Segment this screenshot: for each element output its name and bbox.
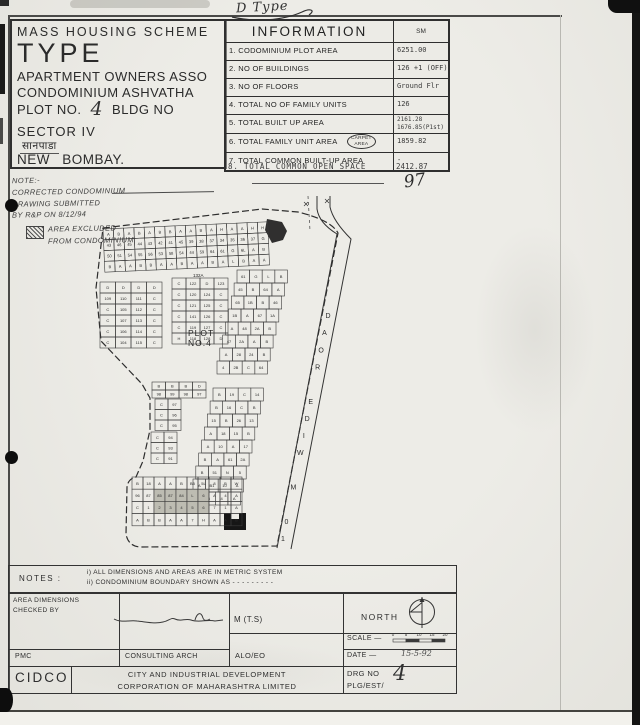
svg-text:7: 7: [213, 505, 216, 510]
svg-text:61: 61: [241, 274, 246, 279]
svg-text:C: C: [160, 402, 163, 407]
paper-margin: [0, 712, 640, 725]
north-arrow-icon: [403, 594, 441, 630]
svg-text:B5: B5: [190, 481, 196, 486]
svg-text:C: C: [178, 325, 181, 330]
plan-cluster-left-strip: C97C96C95: [155, 399, 181, 431]
svg-text:123: 123: [218, 281, 225, 286]
svg-text:A: A: [216, 457, 219, 462]
svg-text:2B: 2B: [233, 365, 238, 370]
road-label-char: 1: [281, 536, 285, 543]
signature: [111, 599, 241, 627]
svg-text:16: 16: [227, 405, 232, 410]
plan-cluster-road-strip-upper: 61GLB45B64A651BB461BA671AA482AB472AABA28…: [217, 270, 287, 374]
carpet-area-bubble: CARPETAREA: [347, 134, 376, 149]
svg-text:104: 104: [120, 340, 127, 345]
svg-text:B: B: [158, 230, 161, 235]
svg-text:10: 10: [218, 444, 223, 449]
notes-line-1: i) ALL DIMENSIONS AND AREAS ARE IN METRI…: [87, 569, 283, 576]
plot-no-handwritten: 4: [90, 98, 103, 120]
info-row-label: 2. NO OF BUILDINGS: [226, 61, 393, 78]
svg-text:10: 10: [416, 632, 422, 637]
svg-text:A: A: [128, 231, 131, 236]
bldg-no-label: BLDG NO: [112, 102, 174, 117]
date-label: DATE —: [347, 652, 377, 659]
svg-text:94: 94: [168, 435, 173, 440]
svg-text:B: B: [268, 326, 271, 331]
svg-text:113: 113: [136, 318, 143, 323]
svg-text:C: C: [220, 325, 223, 330]
svg-text:59: 59: [200, 249, 205, 254]
svg-text:A: A: [169, 481, 172, 486]
svg-text:C: C: [178, 292, 181, 297]
svg-text:C: C: [106, 329, 109, 334]
svg-text:C: C: [243, 392, 246, 397]
svg-text:D: D: [153, 285, 156, 290]
svg-text:61: 61: [228, 457, 233, 462]
svg-text:A: A: [180, 517, 183, 522]
svg-text:65: 65: [235, 300, 240, 305]
svg-text:5: 5: [239, 470, 242, 475]
svg-text:B: B: [136, 481, 139, 486]
info-row-value: 126 +1 (OFF): [393, 61, 448, 78]
svg-text:97: 97: [197, 392, 202, 397]
scheme-condominium: CONDOMINIUM ASHVATHA: [17, 85, 194, 100]
road-label-char: R: [315, 365, 320, 372]
scan-blob: [0, 688, 13, 712]
svg-text:B: B: [171, 384, 174, 389]
svg-text:5L: 5L: [201, 481, 206, 486]
svg-text:B: B: [201, 470, 204, 475]
scheme-title: MASS HOUSING SCHEME: [17, 25, 209, 39]
svg-text:H: H: [261, 225, 264, 230]
svg-text:C: C: [247, 365, 250, 370]
svg-text:15: 15: [429, 632, 435, 637]
info-rows: 1. CODOMINIUM PLOT AREA6251.002. NO OF B…: [226, 43, 448, 170]
info-row-label: 1. CODOMINIUM PLOT AREA: [226, 43, 393, 60]
svg-text:A: A: [201, 260, 204, 265]
info-row-value: 2161.281676.85(P1st): [393, 115, 448, 133]
svg-text:B: B: [204, 457, 207, 462]
svg-text:C: C: [220, 292, 223, 297]
svg-text:53: 53: [158, 251, 163, 256]
svg-text:14: 14: [255, 392, 260, 397]
plan-cluster-bottom-block: B18AABB55L8BW9687858784L6A4AC12345671AAB…: [132, 477, 242, 526]
svg-text:C: C: [178, 281, 181, 286]
svg-text:B: B: [242, 258, 245, 263]
svg-text:B: B: [108, 264, 111, 269]
scale-label: SCALE —: [347, 635, 382, 642]
svg-text:34: 34: [220, 238, 225, 243]
svg-text:2A: 2A: [239, 339, 244, 344]
svg-text:G: G: [231, 248, 234, 253]
survey-mark: [304, 202, 308, 206]
svg-text:C: C: [153, 307, 156, 312]
mts-initials: M (T.S): [234, 615, 263, 624]
svg-text:C: C: [136, 505, 139, 510]
svg-text:D: D: [198, 384, 201, 389]
svg-text:107: 107: [120, 318, 127, 323]
information-header: INFORMATION SM: [226, 21, 448, 43]
open-space-label: 8. TOTAL COMMON OPEN SPACE: [228, 162, 366, 171]
svg-text:45: 45: [179, 239, 184, 244]
svg-text:B: B: [253, 405, 256, 410]
svg-text:A: A: [263, 257, 266, 262]
plot-no-label: PLOT NO.: [17, 102, 81, 117]
svg-text:67: 67: [258, 313, 263, 318]
svg-text:C: C: [160, 423, 163, 428]
organization-name: CITY AND INDUSTRIAL DEVELOPMENTCORPORATI…: [75, 669, 339, 692]
svg-text:A: A: [191, 261, 194, 266]
road-label-char: O: [318, 347, 324, 354]
svg-text:L: L: [267, 274, 270, 279]
handwritten-drg-number: 4: [393, 661, 406, 685]
svg-text:44: 44: [137, 241, 142, 246]
svg-text:2A: 2A: [255, 326, 260, 331]
svg-text:1: 1: [224, 505, 227, 510]
scheme-sector: SECTOR IV: [17, 124, 96, 139]
svg-text:W: W: [235, 481, 239, 486]
svg-text:H: H: [251, 226, 254, 231]
svg-text:A: A: [213, 517, 216, 522]
road-label-char: D: [305, 416, 310, 423]
svg-text:C: C: [240, 405, 243, 410]
plan-cluster-top-band: ABABABBAABAHAAHH434645444342414539383734…: [103, 222, 270, 272]
svg-text:B: B: [247, 431, 250, 436]
svg-text:C: C: [160, 412, 163, 417]
scheme-type: TYPE: [17, 38, 104, 69]
punch-hole: [5, 451, 18, 464]
scheme-city: NEW BOMBAY.: [17, 152, 125, 167]
svg-text:18: 18: [221, 431, 226, 436]
svg-text:1: 1: [147, 505, 150, 510]
information-title: INFORMATION: [226, 21, 393, 42]
info-row-value: Ground Flr: [393, 79, 448, 96]
svg-text:84: 84: [179, 493, 184, 498]
svg-text:C: C: [156, 445, 159, 450]
svg-text:51: 51: [117, 253, 122, 258]
svg-text:A: A: [231, 326, 234, 331]
svg-text:A: A: [119, 264, 122, 269]
svg-text:18: 18: [146, 481, 151, 486]
svg-text:61: 61: [220, 248, 225, 253]
scheme-owner: APARTMENT OWNERS ASSO: [17, 69, 207, 84]
svg-text:4: 4: [222, 365, 225, 370]
svg-text:C: C: [106, 307, 109, 312]
svg-text:H: H: [178, 336, 181, 341]
svg-text:L: L: [232, 259, 235, 264]
svg-text:C: C: [153, 296, 156, 301]
svg-text:C: C: [153, 318, 156, 323]
svg-text:126: 126: [204, 314, 211, 319]
svg-text:56: 56: [148, 252, 153, 257]
svg-text:A: A: [232, 444, 235, 449]
svg-text:35: 35: [230, 237, 235, 242]
svg-text:B: B: [117, 231, 120, 236]
svg-text:54: 54: [128, 252, 133, 257]
info-row-label: 4. TOTAL NO OF FAMILY UNITS: [226, 97, 393, 114]
notes-label: NOTES :: [19, 574, 62, 583]
svg-text:91: 91: [168, 456, 173, 461]
svg-text:D: D: [106, 285, 109, 290]
handwritten-type-note: D Type: [236, 0, 289, 16]
svg-text:28: 28: [236, 352, 241, 357]
svg-text:2A: 2A: [240, 457, 245, 462]
svg-text:120: 120: [190, 292, 197, 297]
plan-cluster-left-strip-2: C94C93C91: [151, 432, 177, 464]
svg-text:A: A: [224, 517, 227, 522]
svg-text:17: 17: [243, 444, 248, 449]
plan-cluster-mid-row: BBBD98999897: [152, 382, 206, 398]
svg-text:B: B: [215, 405, 218, 410]
svg-text:B: B: [235, 517, 238, 522]
svg-text:64: 64: [263, 287, 268, 292]
svg-text:26: 26: [237, 418, 242, 423]
svg-text:0: 0: [392, 632, 395, 637]
svg-text:C: C: [156, 456, 159, 461]
notes-box: NOTES : i) ALL DIMENSIONS AND AREAS ARE …: [8, 565, 457, 594]
road-line-right: [291, 196, 351, 549]
svg-text:51: 51: [212, 470, 217, 475]
svg-text:B: B: [147, 517, 150, 522]
scan-edge-right: [632, 0, 640, 725]
plot-no-4-label: NO.4: [188, 338, 212, 348]
svg-text:G: G: [261, 236, 264, 241]
info-row-value: 6251.00: [393, 43, 448, 60]
svg-text:43: 43: [107, 243, 112, 248]
svg-text:H: H: [220, 227, 223, 232]
underline-stroke: [252, 183, 384, 184]
svg-text:37: 37: [209, 238, 214, 243]
scheme-title-box: MASS HOUSING SCHEME TYPE APARTMENT OWNER…: [10, 19, 227, 169]
svg-text:A: A: [179, 229, 182, 234]
svg-text:B: B: [261, 300, 264, 305]
svg-text:5: 5: [405, 632, 408, 637]
svg-text:C: C: [153, 329, 156, 334]
svg-text:B: B: [138, 230, 141, 235]
svg-text:87: 87: [168, 493, 173, 498]
svg-text:105: 105: [120, 307, 127, 312]
svg-text:A: A: [277, 287, 280, 292]
svg-text:121: 121: [190, 303, 197, 308]
svg-text:A: A: [136, 517, 139, 522]
scan-smudge: [70, 0, 210, 8]
svg-text:B: B: [169, 229, 172, 234]
svg-text:C: C: [106, 340, 109, 345]
info-row: 4. TOTAL NO OF FAMILY UNITS126: [226, 97, 448, 115]
svg-text:99: 99: [170, 392, 175, 397]
info-row: 5. TOTAL BUILT UP AREA2161.281676.85(P1s…: [226, 115, 448, 134]
scan-edge-corner: [608, 0, 640, 13]
road-label-char: A: [322, 330, 327, 337]
note-heading: NOTE:-: [12, 176, 40, 185]
svg-text:47: 47: [227, 339, 232, 344]
svg-text:B: B: [211, 260, 214, 265]
svg-text:141: 141: [190, 314, 197, 319]
svg-text:N: N: [226, 470, 229, 475]
scanned-drawing-sheet: D Type MASS HOUSING SCHEME TYPE APARTMEN…: [0, 0, 640, 725]
svg-text:1B: 1B: [232, 313, 237, 318]
svg-text:45: 45: [238, 287, 243, 292]
svg-text:87: 87: [146, 493, 151, 498]
handwritten-sheet-number: 97: [403, 170, 427, 193]
info-row-label: 5. TOTAL BUILT UP AREA: [226, 115, 393, 133]
svg-text:B: B: [218, 392, 221, 397]
svg-text:A: A: [158, 481, 161, 486]
svg-text:1B: 1B: [248, 300, 253, 305]
svg-text:B: B: [200, 228, 203, 233]
information-table: INFORMATION SM 1. CODOMINIUM PLOT AREA62…: [224, 19, 450, 172]
svg-text:B: B: [139, 263, 142, 268]
info-row-label: 3. NO OF FLOORS: [226, 79, 393, 96]
svg-text:114: 114: [136, 329, 143, 334]
plot-no-4-label: PLOT: [188, 328, 214, 338]
svg-text:A: A: [253, 339, 256, 344]
svg-text:C: C: [220, 303, 223, 308]
svg-text:37: 37: [251, 236, 256, 241]
svg-text:110: 110: [120, 296, 127, 301]
svg-text:111: 111: [136, 296, 143, 301]
survey-mark: [325, 199, 329, 203]
svg-text:B: B: [184, 384, 187, 389]
road-line-left: [277, 196, 337, 548]
plan-cluster-block-d: DDDD109110111CC105112CC107113CC106114CC1…: [100, 282, 162, 348]
svg-text:B: B: [265, 339, 268, 344]
svg-text:20: 20: [442, 632, 448, 637]
svg-text:24: 24: [249, 352, 254, 357]
svg-text:A: A: [225, 352, 228, 357]
svg-text:B: B: [263, 352, 266, 357]
svg-text:C: C: [153, 340, 156, 345]
svg-text:8: 8: [213, 481, 216, 486]
consulting-arch-label: CONSULTING ARCH: [125, 653, 198, 660]
svg-text:B: B: [158, 517, 161, 522]
svg-text:44: 44: [189, 250, 194, 255]
info-row-value: 126: [393, 97, 448, 114]
svg-text:C: C: [220, 314, 223, 319]
svg-text:122: 122: [190, 281, 197, 286]
svg-text:B: B: [224, 481, 227, 486]
sheet-border-right: [560, 15, 561, 711]
road-label-char: 0: [285, 519, 289, 526]
svg-text:55: 55: [138, 252, 143, 257]
road-label-char: M: [290, 485, 296, 492]
excluded-area-hatch-swatch: [26, 226, 44, 239]
grid-line: [343, 593, 344, 693]
drg-no-label: DRG NOPLG/EST/: [347, 668, 384, 691]
svg-text:112: 112: [136, 307, 143, 312]
svg-text:125: 125: [204, 303, 211, 308]
grid-line: [9, 666, 456, 667]
svg-text:96: 96: [135, 493, 140, 498]
svg-text:50: 50: [107, 253, 112, 258]
svg-text:124: 124: [204, 292, 211, 297]
svg-text:A: A: [129, 263, 132, 268]
officer-label: ALO/EO: [235, 651, 265, 660]
svg-text:B: B: [225, 418, 228, 423]
title-block: AREA DIMENSIONSCHECKED BY M (T.S) NORTH …: [8, 592, 457, 694]
svg-text:4: 4: [220, 496, 223, 501]
svg-text:58: 58: [169, 251, 174, 256]
block-132a-label: 132A: [193, 273, 204, 278]
info-row: 1. CODOMINIUM PLOT AREA6251.00: [226, 43, 448, 61]
svg-text:A: A: [160, 262, 163, 267]
info-row: 2. NO OF BUILDINGS126 +1 (OFF): [226, 61, 448, 79]
svg-text:A: A: [189, 228, 192, 233]
svg-text:C: C: [178, 314, 181, 319]
svg-text:D: D: [206, 281, 209, 286]
svg-text:B: B: [252, 287, 255, 292]
checked-by-label: AREA DIMENSIONSCHECKED BY: [13, 596, 79, 617]
road-label-char: D: [325, 313, 330, 320]
north-label: NORTH: [361, 612, 399, 622]
svg-text:A: A: [210, 227, 213, 232]
svg-text:A: A: [209, 431, 212, 436]
svg-text:106: 106: [120, 329, 127, 334]
svg-text:D: D: [220, 336, 223, 341]
svg-text:64: 64: [259, 365, 264, 370]
svg-text:64: 64: [210, 249, 215, 254]
svg-text:115: 115: [136, 340, 143, 345]
svg-text:85: 85: [157, 493, 162, 498]
info-row: 3. NO OF FLOORSGround Flr: [226, 79, 448, 97]
info-row-value: 1859.82: [393, 134, 448, 152]
svg-text:15: 15: [211, 418, 216, 423]
svg-text:43: 43: [148, 241, 153, 246]
handwritten-date: 15-5-92: [401, 649, 432, 658]
grid-line: [71, 666, 72, 693]
svg-text:36: 36: [240, 237, 245, 242]
svg-text:41: 41: [168, 240, 173, 245]
svg-text:B: B: [280, 274, 283, 279]
svg-text:A: A: [213, 493, 216, 498]
svg-text:B: B: [262, 247, 265, 252]
svg-text:A: A: [241, 226, 244, 231]
svg-text:H: H: [202, 517, 205, 522]
svg-text:A: A: [230, 226, 233, 231]
svg-text:42: 42: [158, 240, 163, 245]
road-label-char: W: [297, 450, 304, 457]
svg-text:C: C: [156, 435, 159, 440]
svg-text:96: 96: [172, 412, 177, 417]
svg-text:93: 93: [168, 445, 173, 450]
punch-hole: [5, 199, 18, 212]
svg-text:39: 39: [189, 239, 194, 244]
road-label-char: E: [308, 399, 313, 406]
svg-text:A: A: [252, 258, 255, 263]
svg-text:54: 54: [179, 250, 184, 255]
scan-edge-left: [0, 118, 3, 144]
grid-line: [9, 649, 229, 650]
cidco-logo-text: CIDCO: [15, 670, 69, 685]
svg-text:B: B: [180, 481, 183, 486]
notes-line-2: ii) CONDOMINIUM BOUNDARY SHOWN AS - - - …: [87, 579, 273, 586]
svg-text:B: B: [149, 262, 152, 267]
svg-text:A: A: [107, 232, 110, 237]
scheme-plot-row: PLOT NO. 4 BLDG NO: [17, 102, 174, 120]
svg-text:A: A: [169, 517, 172, 522]
plan-cluster-road-strip-lower: B19C14B16CB15B2613A1815BA10A17BA612AB51N…: [190, 388, 263, 505]
svg-text:19: 19: [230, 392, 235, 397]
svg-text:46: 46: [273, 300, 278, 305]
svg-text:G: G: [254, 274, 257, 279]
road-dashed-extension: [308, 196, 310, 231]
svg-text:13: 13: [249, 418, 254, 423]
svg-text:109: 109: [104, 296, 111, 301]
svg-text:C: C: [106, 318, 109, 323]
pmc-label: PMC: [15, 653, 32, 660]
paper-stain: [475, 225, 595, 435]
